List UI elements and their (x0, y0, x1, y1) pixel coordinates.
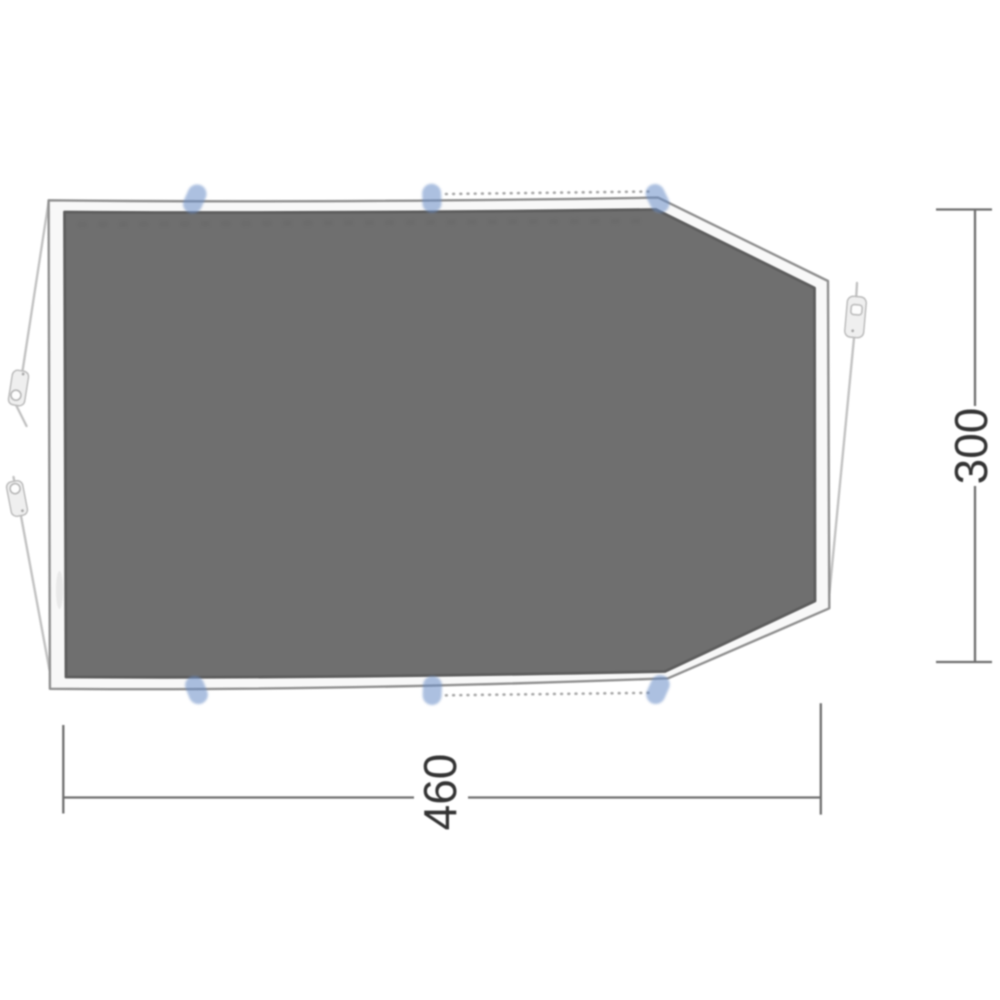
svg-text:460: 460 (414, 754, 466, 831)
svg-text:300: 300 (945, 408, 997, 485)
